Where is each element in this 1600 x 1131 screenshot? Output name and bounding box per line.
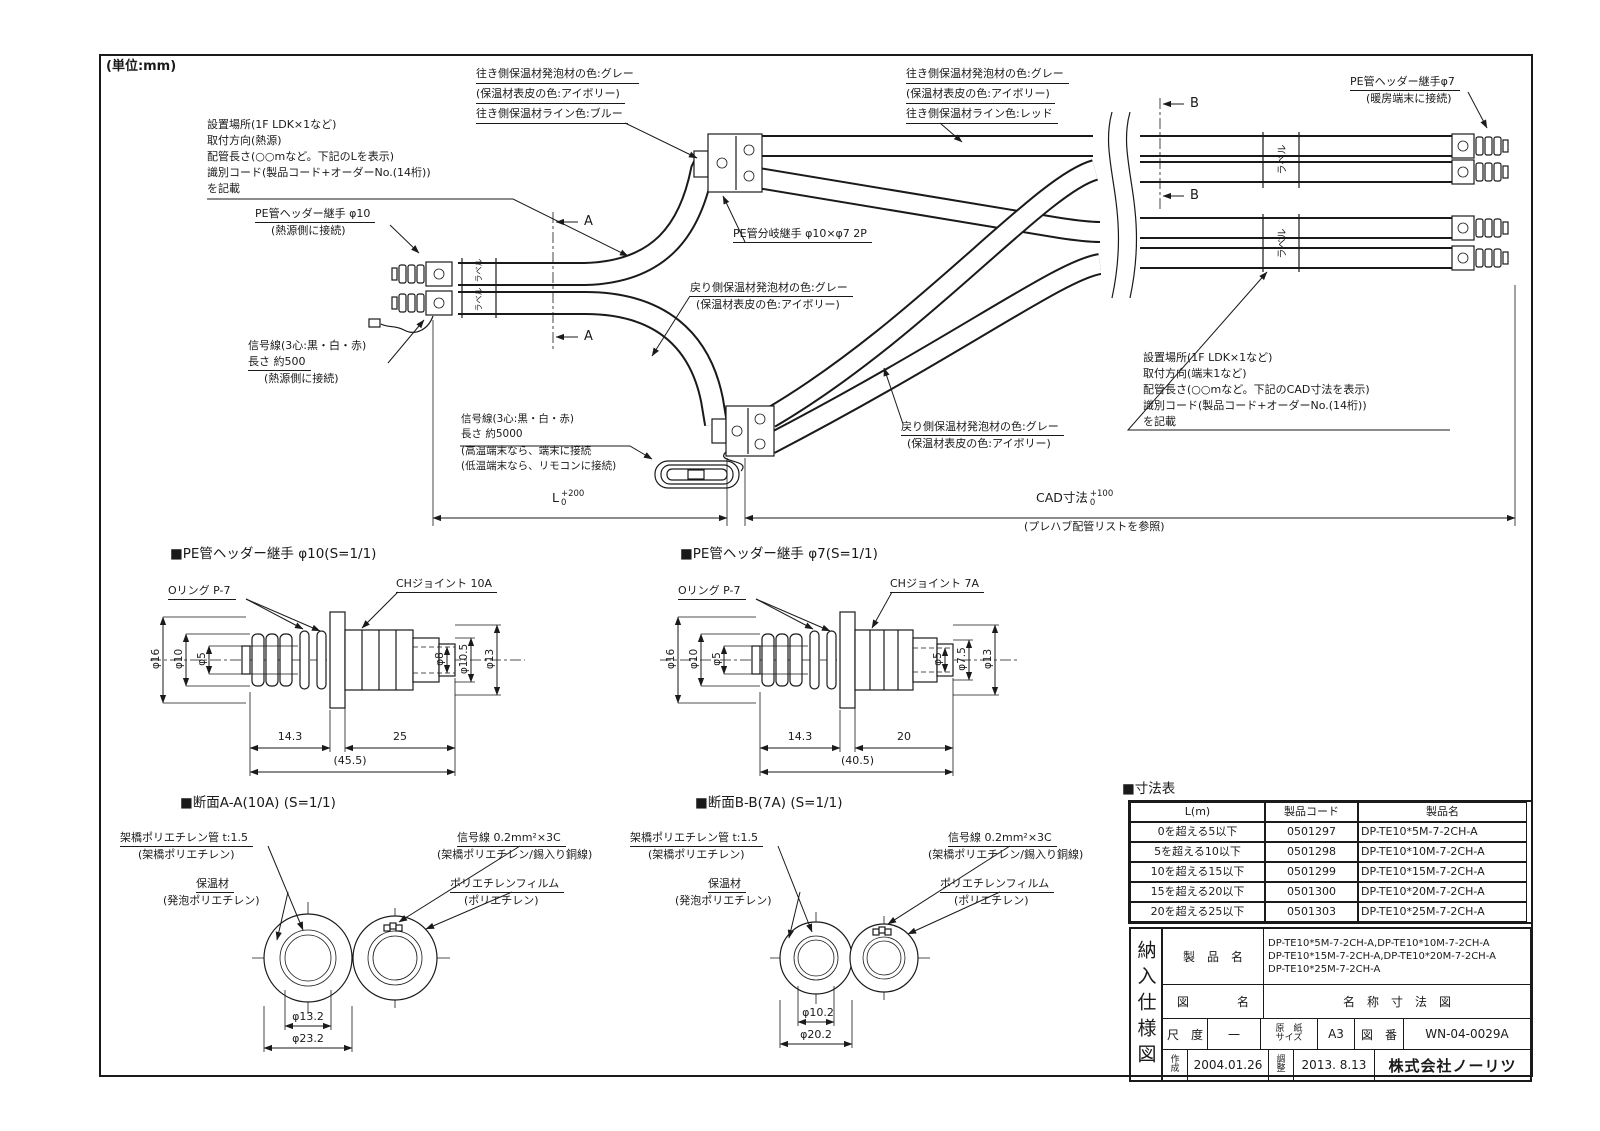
drawing-name-label: 図 名 [1163, 985, 1264, 1018]
scale-value: 一 [1208, 1019, 1261, 1049]
table-cell: 0501298 [1265, 842, 1358, 862]
fitting-10-dim-d13: φ13 [484, 637, 496, 681]
section-aa-dia-inner: φ13.2 [270, 1010, 346, 1023]
fitting-10-joint-label: CHジョイント 10A [396, 576, 497, 593]
note-heat-source: 設置場所(1F LDK×1など) 取付方向(熱源) 配管長さ(○○mなど。下記の… [207, 117, 431, 197]
fitting-7-len-total: (40.5) [795, 754, 920, 767]
fitting-10-len2: 25 [345, 730, 455, 743]
scale-label: 尺 度 [1163, 1019, 1208, 1049]
label-tape-text-2: ラベル [474, 282, 485, 318]
fitting-10-dim-d10: φ10 [173, 637, 185, 681]
pe-branch-label: PE管分岐継手 φ10×φ7 2P [733, 226, 872, 243]
paper-size-value: A3 [1318, 1019, 1355, 1049]
table-cell: 0501297 [1265, 822, 1358, 842]
pipe-break-symbol [1101, 110, 1136, 302]
fitting-10-dim-d5: φ5 [196, 637, 208, 681]
section-aa-dia-outer: φ23.2 [264, 1032, 352, 1045]
dim-l: L+2000 [552, 490, 584, 508]
section-bb-signal-label: 信号線 0.2mm²×3C (架橋ポリエチレン/錫入り銅線) [928, 830, 1083, 863]
pe-header-10-connectors [392, 262, 452, 315]
fitting-7-dim-d10: φ10 [688, 637, 700, 681]
created-date: 2004.01.26 [1188, 1050, 1269, 1080]
fitting-10-len1: 14.3 [250, 730, 330, 743]
table-cell: 5を超える10以下 [1130, 842, 1265, 862]
fitting-7-dim-d5l: φ5 [711, 637, 723, 681]
created-label: 作 成 [1163, 1050, 1188, 1080]
adjusted-label: 調 整 [1269, 1050, 1294, 1080]
signal-short-label: 信号線(3心:黒・白・赤) 長さ 約500 (熱源側に接続) [248, 338, 366, 387]
drawing-number-value: WN-04-0029A [1404, 1019, 1530, 1049]
table-cell: 15を超える20以下 [1130, 882, 1265, 902]
fitting-7-title: ■PE管ヘッダー継手 φ7(S=1/1) [680, 546, 878, 562]
size-table: L(m) 製品コード 製品名 0を超える5以下 0501297 DP-TE10*… [1128, 800, 1533, 924]
table-cell: 20を超える25以下 [1130, 902, 1265, 922]
table-cell: 10を超える15以下 [1130, 862, 1265, 882]
product-name-label: 製 品 名 [1163, 929, 1264, 984]
drawing-page: .ln{stroke:#1a1a1a;stroke-width:1.2;fill… [0, 0, 1600, 1131]
size-table-header-name: 製品名 [1358, 802, 1527, 822]
outward-blue-note: 往き側保温材発泡材の色:グレー (保温材表皮の色:アイボリー) 往き側保温材ライ… [476, 64, 639, 124]
section-aa-signal-label: 信号線 0.2mm²×3C (架橋ポリエチレン/錫入り銅線) [437, 830, 592, 863]
section-b-letter-top: B [1190, 96, 1199, 111]
drawing-number-label: 図 番 [1355, 1019, 1404, 1049]
section-aa-title: ■断面A-A(10A) (S=1/1) [180, 795, 336, 811]
section-bb-film-label: ポリエチレンフィルム (ポリエチレン) [940, 876, 1054, 909]
fitting-7-dim-d16: φ16 [665, 637, 677, 681]
fitting-7-dim-d5r: φ5 [932, 637, 944, 681]
size-table-header-code: 製品コード [1265, 802, 1358, 822]
title-block-doc-type: 納入仕様図 [1131, 929, 1163, 1080]
section-bb-dia-outer: φ20.2 [776, 1028, 856, 1041]
section-aa-insulation-label: 保温材 (発泡ポリエチレン) [163, 876, 260, 909]
note-terminal: 設置場所(1F LDK×1など) 取付方向(端末1など) 配管長さ(○○mなど。… [1143, 350, 1370, 430]
fitting-7-len1: 14.3 [760, 730, 840, 743]
section-a-letter-top: A [584, 214, 593, 229]
section-aa-pex-label: 架橋ポリエチレン管 t:1.5 (架橋ポリエチレン) [120, 830, 253, 863]
fitting-10-len-total: (45.5) [290, 754, 410, 767]
dim-cad: CAD寸法+1000 [1036, 490, 1113, 508]
signal-long-label: 信号線(3心:黒・白・赤) 長さ 約5000 (高温端末なら、端末に接続 (低温… [461, 412, 616, 473]
fitting-7-joint-label: CHジョイント 7A [890, 576, 984, 593]
pe-header-7-connectors [1452, 134, 1508, 270]
paper-size-label: 原 紙 サイズ [1261, 1019, 1318, 1049]
section-b-letter-bottom: B [1190, 188, 1199, 203]
section-bb-dia-inner: φ10.2 [782, 1006, 854, 1019]
label-tape-text-4: ラベル [1274, 226, 1289, 262]
table-cell: 0を超える5以下 [1130, 822, 1265, 842]
fitting-7-drawing [660, 592, 1020, 776]
fitting-10-dim-d105: φ10.5 [458, 637, 470, 681]
table-cell: DP-TE10*25M-7-2CH-A [1358, 902, 1527, 922]
fitting-7-len2: 20 [855, 730, 953, 743]
signal-wire-coil [655, 452, 743, 488]
table-cell: 0501300 [1265, 882, 1358, 902]
fitting-10-title: ■PE管ヘッダー継手 φ10(S=1/1) [170, 546, 376, 562]
fitting-7-oring-label: Oリング P-7 [678, 583, 746, 600]
table-cell: 0501303 [1265, 902, 1358, 922]
fitting-7-dim-d75: φ7.5 [956, 637, 968, 681]
unit-note: (単位:mm) [106, 59, 176, 75]
fitting-10-oring-label: Oリング P-7 [168, 583, 236, 600]
company-logo: 株式会社ノーリツ [1375, 1050, 1530, 1080]
pe-header-7-label: PE管ヘッダー継手φ7 (暖房端末に接続) [1350, 74, 1460, 107]
section-aa-film-label: ポリエチレンフィルム (ポリエチレン) [450, 876, 564, 909]
table-cell: DP-TE10*10M-7-2CH-A [1358, 842, 1527, 862]
table-cell: DP-TE10*15M-7-2CH-A [1358, 862, 1527, 882]
section-bb-title: ■断面B-B(7A) (S=1/1) [695, 795, 842, 811]
size-table-header-l: L(m) [1130, 802, 1265, 822]
drawing-name: 名 称 寸 法 図 [1264, 985, 1530, 1018]
section-a-letter-bottom: A [584, 329, 593, 344]
pe-header-10-label: PE管ヘッダー継手 φ10 (熱源側に接続) [255, 206, 375, 239]
return-gray-note-1: 戻り側保温材発泡材の色:グレー (保温材表皮の色:アイボリー) [690, 280, 853, 313]
adjusted-date: 2013. 8.13 [1294, 1050, 1375, 1080]
fitting-10-drawing [150, 592, 525, 776]
label-tape-text-3: ラベル [1274, 142, 1289, 178]
product-names: DP-TE10*5M-7-2CH-A,DP-TE10*10M-7-2CH-A D… [1264, 929, 1530, 984]
return-gray-note-2: 戻り側保温材発泡材の色:グレー (保温材表皮の色:アイボリー) [901, 419, 1064, 452]
fitting-10-dim-d8: φ8 [434, 637, 446, 681]
section-bb-insulation-label: 保温材 (発泡ポリエチレン) [675, 876, 772, 909]
fitting-7-dim-d13: φ13 [982, 637, 994, 681]
signal-wire-short [369, 316, 433, 332]
outward-red-note: 往き側保温材発泡材の色:グレー (保温材表皮の色:アイボリー) 往き側保温材ライ… [906, 64, 1069, 124]
fitting-10-dim-d16: φ16 [150, 637, 162, 681]
cad-note: (プレハブ配管リストを参照) [1024, 519, 1165, 535]
table-cell: 0501299 [1265, 862, 1358, 882]
section-bb-pex-label: 架橋ポリエチレン管 t:1.5 (架橋ポリエチレン) [630, 830, 763, 863]
title-block: 納入仕様図 製 品 名 DP-TE10*5M-7-2CH-A,DP-TE10*1… [1129, 927, 1532, 1082]
table-cell: DP-TE10*5M-7-2CH-A [1358, 822, 1527, 842]
table-cell: DP-TE10*20M-7-2CH-A [1358, 882, 1527, 902]
size-table-title: ■寸法表 [1122, 781, 1175, 797]
